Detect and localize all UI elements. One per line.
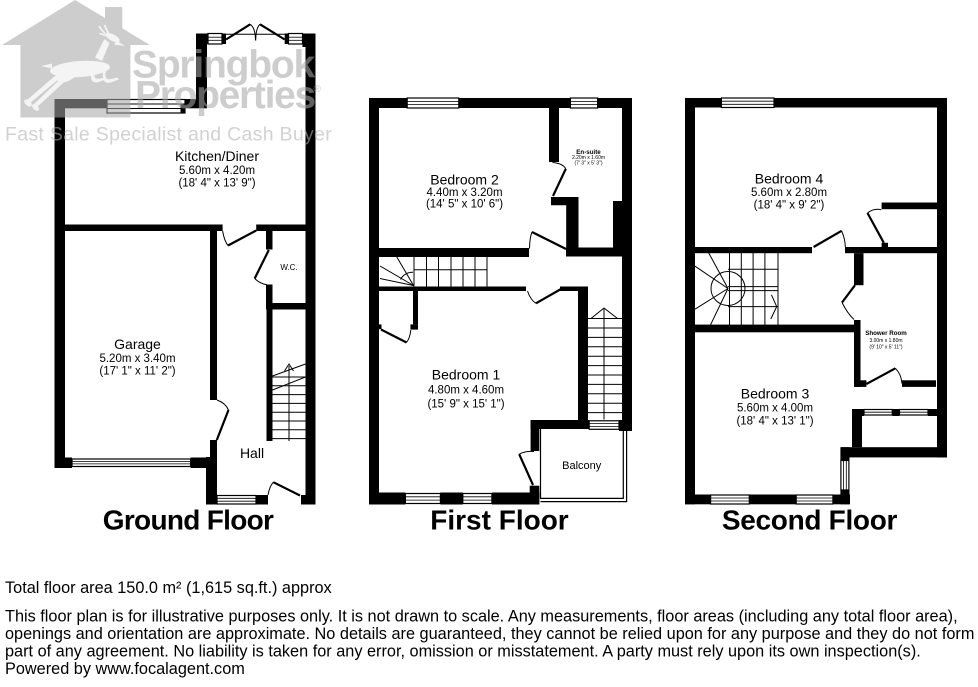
svg-text:®: ® [314, 84, 322, 95]
svg-text:Bedroom 4: Bedroom 4 [755, 171, 824, 187]
svg-text:Bedroom 2: Bedroom 2 [430, 172, 499, 188]
svg-text:Shower Room: Shower Room [865, 330, 907, 337]
svg-text:First Floor: First Floor [430, 505, 569, 536]
svg-text:5.60m x 4.20m: 5.60m x 4.20m [179, 165, 255, 177]
svg-text:This floor plan is for illustr: This floor plan is for illustrative purp… [5, 608, 958, 626]
svg-text:(17' 1" x 11' 2"): (17' 1" x 11' 2") [99, 366, 175, 378]
svg-text:Kitchen/Diner: Kitchen/Diner [175, 148, 259, 164]
svg-text:5.60m x 2.80m: 5.60m x 2.80m [751, 187, 827, 199]
svg-text:Powered by www.focalagent.com: Powered by www.focalagent.com [5, 660, 245, 678]
svg-text:Properties: Properties [135, 74, 316, 117]
svg-text:Bedroom 1: Bedroom 1 [432, 367, 501, 383]
svg-text:(15' 9" x 15' 1"): (15' 9" x 15' 1") [427, 399, 504, 411]
svg-text:(18' 4" x 13' 1"): (18' 4" x 13' 1") [736, 416, 813, 428]
svg-text:(9' 10" x 5' 11"): (9' 10" x 5' 11") [869, 345, 902, 351]
svg-text:openings and orientation are a: openings and orientation are approximate… [5, 625, 974, 643]
svg-text:3.00m x 1.80m: 3.00m x 1.80m [869, 338, 902, 344]
svg-text:(7' 3" x 5' 3"): (7' 3" x 5' 3") [575, 161, 603, 167]
svg-text:Ground Floor: Ground Floor [103, 505, 274, 536]
svg-text:5.20m x 3.40m: 5.20m x 3.40m [99, 353, 175, 365]
svg-text:part of any agreement. No liab: part of any agreement. No liability is t… [5, 643, 921, 661]
svg-text:Second Floor: Second Floor [722, 505, 898, 536]
svg-text:Hall: Hall [240, 445, 264, 461]
svg-text:Balcony: Balcony [562, 460, 602, 472]
svg-text:Total floor area 150.0 m² (1,6: Total floor area 150.0 m² (1,615 sq.ft.)… [5, 579, 332, 597]
svg-text:Fast Sale Specialist and Cash: Fast Sale Specialist and Cash Buyer [5, 124, 332, 146]
svg-text:W.C.: W.C. [280, 263, 297, 272]
svg-text:Bedroom 3: Bedroom 3 [741, 386, 810, 402]
svg-text:(18' 4" x 9' 2"): (18' 4" x 9' 2") [754, 200, 825, 212]
svg-text:(14' 5" x 10' 6"): (14' 5" x 10' 6") [426, 199, 503, 211]
svg-text:Garage: Garage [114, 336, 161, 352]
svg-text:(18' 4" x 13' 9"): (18' 4" x 13' 9") [178, 178, 255, 190]
svg-text:4.40m x 3.20m: 4.40m x 3.20m [426, 187, 502, 199]
svg-text:4.80m x 4.60m: 4.80m x 4.60m [428, 385, 504, 397]
svg-text:5.60m x 4.00m: 5.60m x 4.00m [737, 403, 813, 415]
